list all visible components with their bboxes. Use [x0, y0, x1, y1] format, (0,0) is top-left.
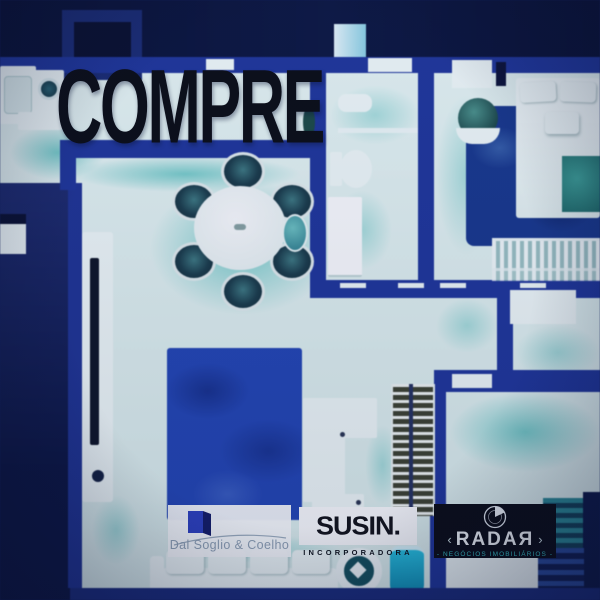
slatted-bench: [492, 268, 600, 281]
side-table: [282, 214, 308, 252]
shower-screen: [338, 128, 418, 133]
tv: [90, 258, 99, 445]
logo-susin-subtitle: INCORPORADORA: [299, 548, 417, 557]
floor-shadow: [92, 495, 140, 565]
table-centerpiece: [234, 224, 246, 230]
logo-radar-subtitle: - NEGÓCIOS IMOBILIÁRIOS -: [437, 551, 553, 558]
laurel-right-icon: ›: [538, 533, 542, 546]
logo-susin-name: SUSIN.: [316, 511, 400, 540]
console-decor: [92, 470, 104, 482]
door-panel: [452, 374, 492, 388]
floor-shadow: [436, 298, 498, 353]
wall: [418, 70, 434, 298]
laurel-left-icon: ‹: [447, 533, 451, 546]
door-lintel: [440, 283, 466, 288]
kitchen-cabinet: [303, 436, 345, 502]
cabinet-knob: [356, 500, 361, 505]
bed-cushion: [545, 112, 579, 134]
living-room-rug: [167, 348, 302, 520]
headline: COMPRE: [56, 64, 323, 150]
logo-radar-name: RADAЯ: [456, 530, 535, 549]
wall: [68, 183, 82, 588]
logo-dal-soglio-name: Dal Soglio & Coelho: [168, 538, 291, 552]
door-lintel: [340, 283, 366, 288]
door-lintel: [398, 283, 424, 288]
bottom-wall-band: [70, 588, 600, 600]
toilet: [340, 150, 372, 188]
ac-unit: [0, 224, 26, 254]
slatted-bench: [492, 238, 600, 271]
pantry-shelf: [391, 384, 435, 516]
logo-susin: SUSIN.: [299, 507, 417, 545]
logo-dal-soglio: Dal Soglio & Coelho: [168, 505, 291, 557]
wall-vent: [0, 214, 26, 224]
towel-rack: [368, 58, 412, 72]
real-estate-ad: COMPRE Dal Soglio & Coelho SUSIN. INCORP…: [0, 0, 600, 600]
logo-radar: ‹ RADAЯ › - NEGÓCIOS IMOBILIÁRIOS -: [434, 504, 556, 558]
dining-chair: [221, 272, 265, 311]
dresser: [510, 290, 576, 324]
wardrobe: [583, 492, 600, 600]
skylight: [334, 24, 366, 57]
desk: [452, 60, 492, 88]
radar-icon: [479, 504, 511, 530]
kitchen-sink: [4, 76, 32, 114]
floor-shadow: [450, 392, 600, 472]
door-lintel: [520, 283, 546, 288]
pantry-shelf-divider: [409, 384, 413, 516]
bathroom-cabinet: [328, 197, 362, 277]
pillow: [520, 81, 557, 103]
bathroom-sink: [338, 94, 372, 112]
cabinet-knob: [340, 432, 345, 437]
bed-throw: [562, 156, 600, 212]
desk-decor: [496, 62, 506, 86]
pillow: [560, 81, 597, 102]
